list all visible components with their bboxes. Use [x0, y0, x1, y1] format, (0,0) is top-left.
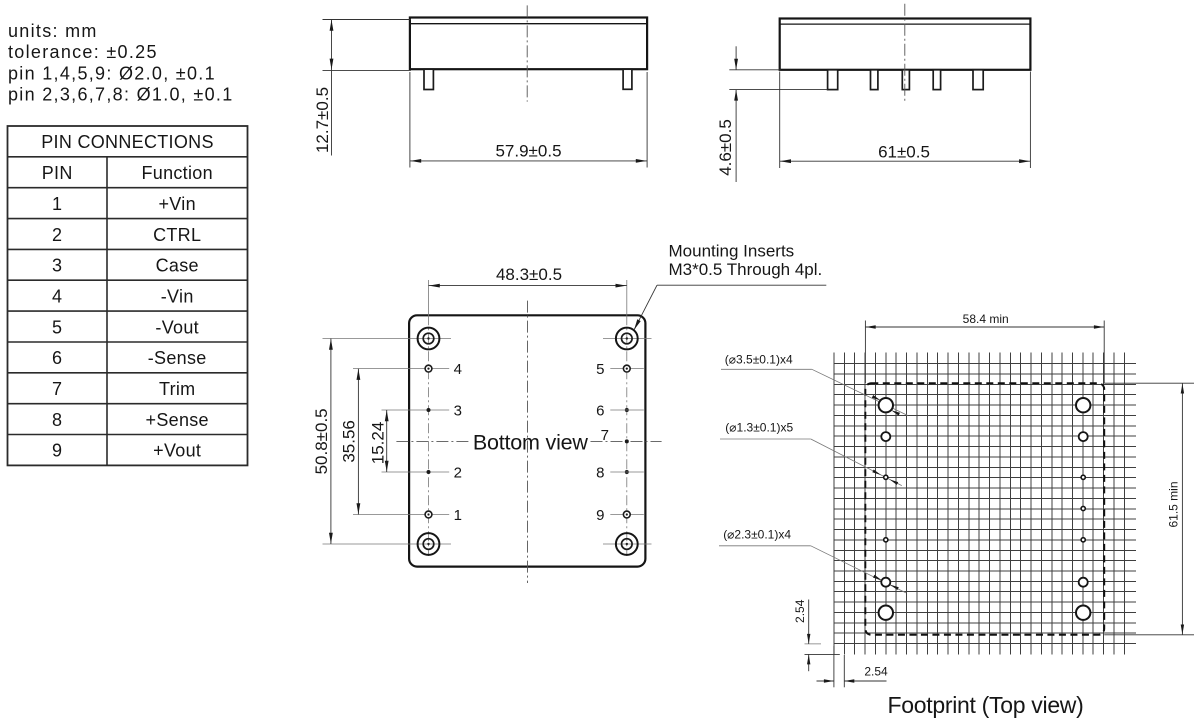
svg-text:-Vout: -Vout: [155, 317, 199, 337]
svg-text:4: 4: [52, 287, 62, 307]
svg-text:2.54: 2.54: [793, 599, 807, 623]
svg-text:3: 3: [52, 256, 62, 276]
svg-text:15.24: 15.24: [369, 422, 388, 465]
svg-text:-Sense: -Sense: [148, 348, 207, 368]
svg-text:Function: Function: [141, 163, 212, 183]
svg-text:4: 4: [454, 361, 462, 378]
svg-text:4.6±0.5: 4.6±0.5: [716, 119, 735, 176]
svg-text:58.4 min: 58.4 min: [963, 312, 1009, 326]
svg-text:50.8±0.5: 50.8±0.5: [312, 408, 331, 474]
svg-text:9: 9: [596, 507, 604, 524]
svg-text:7: 7: [52, 379, 62, 399]
svg-text:(⌀2.3±0.1)x4: (⌀2.3±0.1)x4: [723, 528, 791, 542]
svg-text:pin 2,3,6,7,8: Ø1.0, ±0.1: pin 2,3,6,7,8: Ø1.0, ±0.1: [8, 85, 234, 105]
svg-text:Case: Case: [156, 256, 199, 276]
svg-text:+Vin: +Vin: [158, 194, 195, 214]
svg-text:-Vin: -Vin: [161, 287, 194, 307]
svg-text:2: 2: [52, 225, 62, 245]
svg-text:8: 8: [52, 410, 62, 430]
svg-text:12.7±0.5: 12.7±0.5: [313, 87, 332, 153]
svg-text:1: 1: [454, 507, 462, 524]
svg-text:Trim: Trim: [159, 379, 196, 399]
svg-text:5: 5: [52, 317, 62, 337]
svg-text:PIN CONNECTIONS: PIN CONNECTIONS: [41, 132, 214, 152]
svg-text:5: 5: [596, 361, 604, 378]
svg-text:6: 6: [52, 348, 62, 368]
svg-text:M3*0.5 Through 4pl.: M3*0.5 Through 4pl.: [669, 260, 823, 279]
svg-text:PIN: PIN: [42, 163, 73, 183]
svg-text:1: 1: [52, 194, 62, 214]
svg-text:9: 9: [52, 441, 62, 461]
svg-text:6: 6: [596, 402, 604, 419]
svg-text:8: 8: [596, 464, 604, 481]
svg-text:Bottom view: Bottom view: [473, 431, 589, 455]
svg-text:+Vout: +Vout: [153, 441, 201, 461]
svg-text:2: 2: [454, 464, 462, 481]
svg-text:tolerance: ±0.25: tolerance: ±0.25: [8, 42, 158, 62]
svg-text:48.3±0.5: 48.3±0.5: [496, 265, 562, 284]
svg-text:57.9±0.5: 57.9±0.5: [495, 141, 561, 160]
svg-text:CTRL: CTRL: [153, 225, 201, 245]
svg-text:(⌀3.5±0.1)x4: (⌀3.5±0.1)x4: [725, 353, 793, 367]
svg-text:(⌀1.3±0.1)x5: (⌀1.3±0.1)x5: [725, 420, 793, 434]
svg-text:61±0.5: 61±0.5: [878, 143, 930, 162]
svg-text:61.5 min: 61.5 min: [1167, 481, 1181, 527]
svg-text:3: 3: [454, 402, 462, 419]
svg-text:2.54: 2.54: [864, 665, 888, 679]
svg-text:Mounting Inserts: Mounting Inserts: [669, 241, 795, 260]
svg-text:+Sense: +Sense: [146, 410, 209, 430]
svg-text:units: mm: units: mm: [8, 21, 98, 41]
svg-text:35.56: 35.56: [340, 420, 359, 463]
svg-text:Footprint (Top view): Footprint (Top view): [888, 692, 1084, 718]
svg-text:pin 1,4,5,9: Ø2.0, ±0.1: pin 1,4,5,9: Ø2.0, ±0.1: [8, 63, 216, 83]
svg-text:7: 7: [601, 427, 609, 444]
